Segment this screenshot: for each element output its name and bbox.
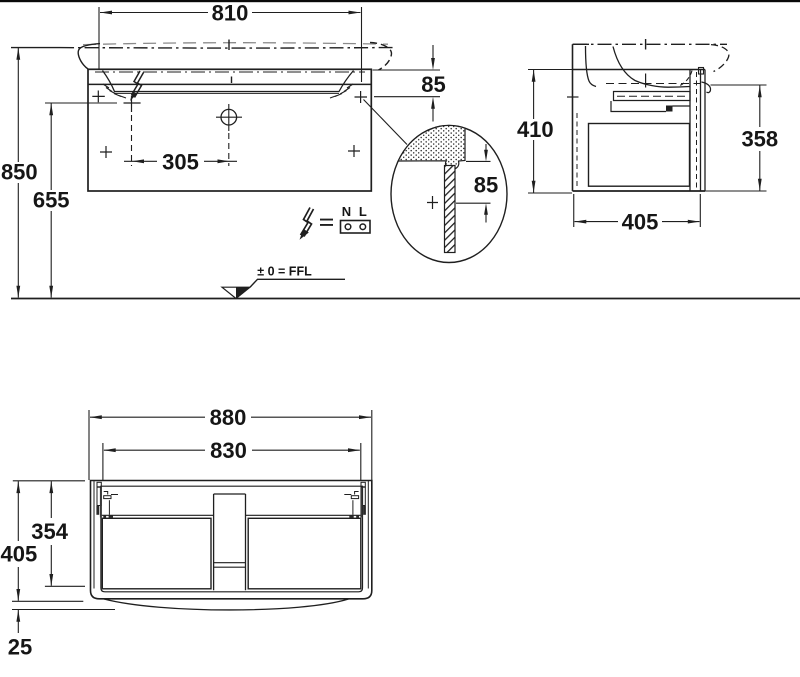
svg-text:880: 880 <box>210 405 247 430</box>
svg-text:305: 305 <box>162 150 199 175</box>
svg-text:25: 25 <box>8 635 32 660</box>
svg-text:850: 850 <box>1 160 38 185</box>
svg-text:358: 358 <box>741 126 778 151</box>
svg-text:L: L <box>359 204 367 219</box>
svg-text:354: 354 <box>31 519 68 544</box>
svg-text:85: 85 <box>421 72 445 97</box>
svg-text:810: 810 <box>212 1 249 26</box>
svg-text:N: N <box>342 204 351 219</box>
svg-text:655: 655 <box>33 188 70 213</box>
svg-text:405: 405 <box>1 542 38 567</box>
svg-text:410: 410 <box>517 117 554 142</box>
svg-text:830: 830 <box>210 438 247 463</box>
svg-text:85: 85 <box>474 173 498 198</box>
svg-text:± 0 = FFL: ± 0 = FFL <box>257 264 312 278</box>
svg-text:405: 405 <box>622 210 659 235</box>
